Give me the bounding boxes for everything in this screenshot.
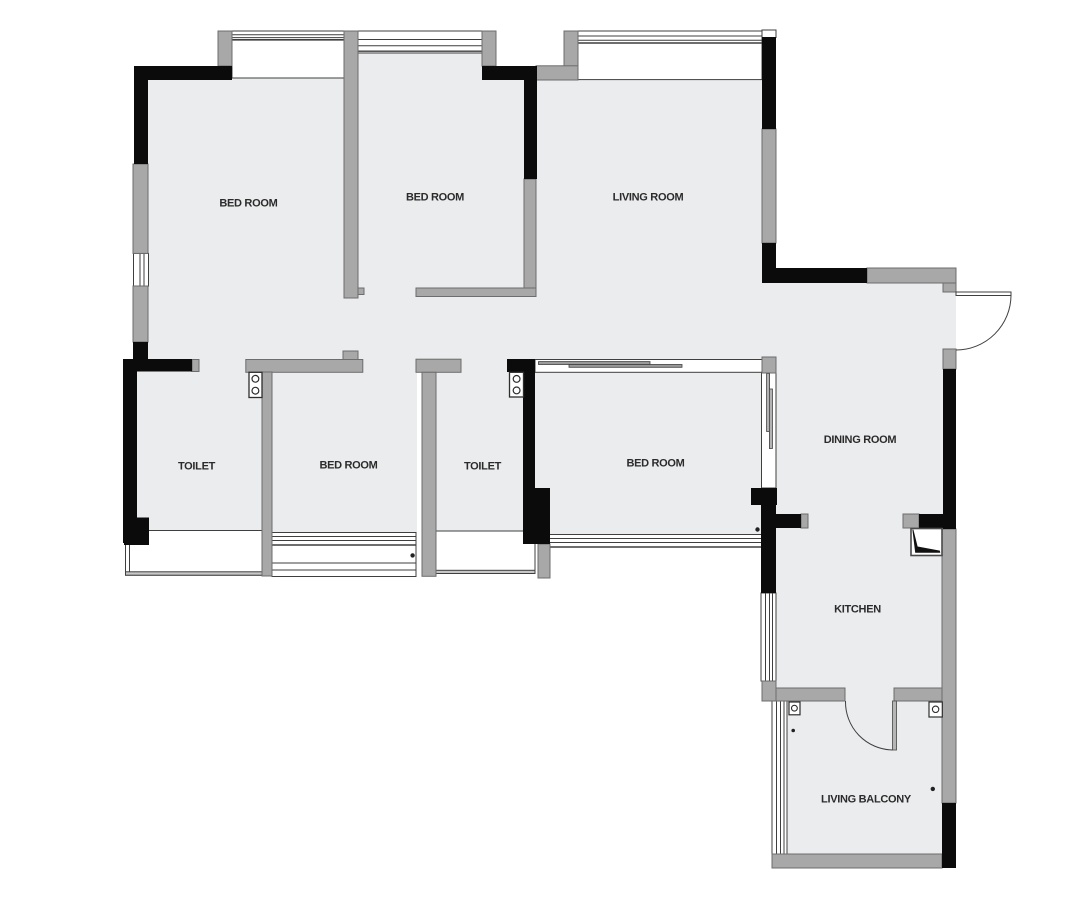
- svg-text:TOILET: TOILET: [178, 461, 216, 473]
- svg-text:TOILET: TOILET: [464, 461, 502, 473]
- svg-text:DINING ROOM: DINING ROOM: [824, 434, 897, 446]
- svg-text:LIVING ROOM: LIVING ROOM: [613, 192, 684, 204]
- svg-text:BED ROOM: BED ROOM: [219, 198, 277, 210]
- svg-text:KITCHEN: KITCHEN: [834, 604, 881, 616]
- svg-text:LIVING BALCONY: LIVING BALCONY: [821, 794, 912, 806]
- svg-text:BED ROOM: BED ROOM: [319, 460, 377, 472]
- svg-text:BED ROOM: BED ROOM: [406, 192, 464, 204]
- svg-text:BED ROOM: BED ROOM: [626, 458, 684, 470]
